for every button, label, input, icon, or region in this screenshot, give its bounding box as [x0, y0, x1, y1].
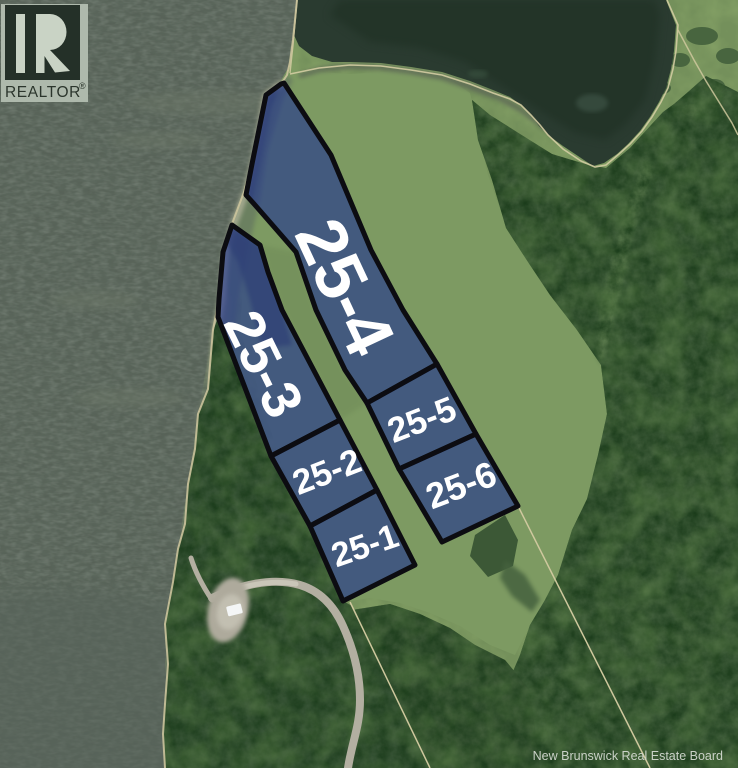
svg-text:REALTOR: REALTOR	[5, 84, 81, 101]
svg-text:®: ®	[79, 81, 86, 91]
svg-text:New Brunswick Real Estate Boar: New Brunswick Real Estate Board	[533, 749, 723, 763]
